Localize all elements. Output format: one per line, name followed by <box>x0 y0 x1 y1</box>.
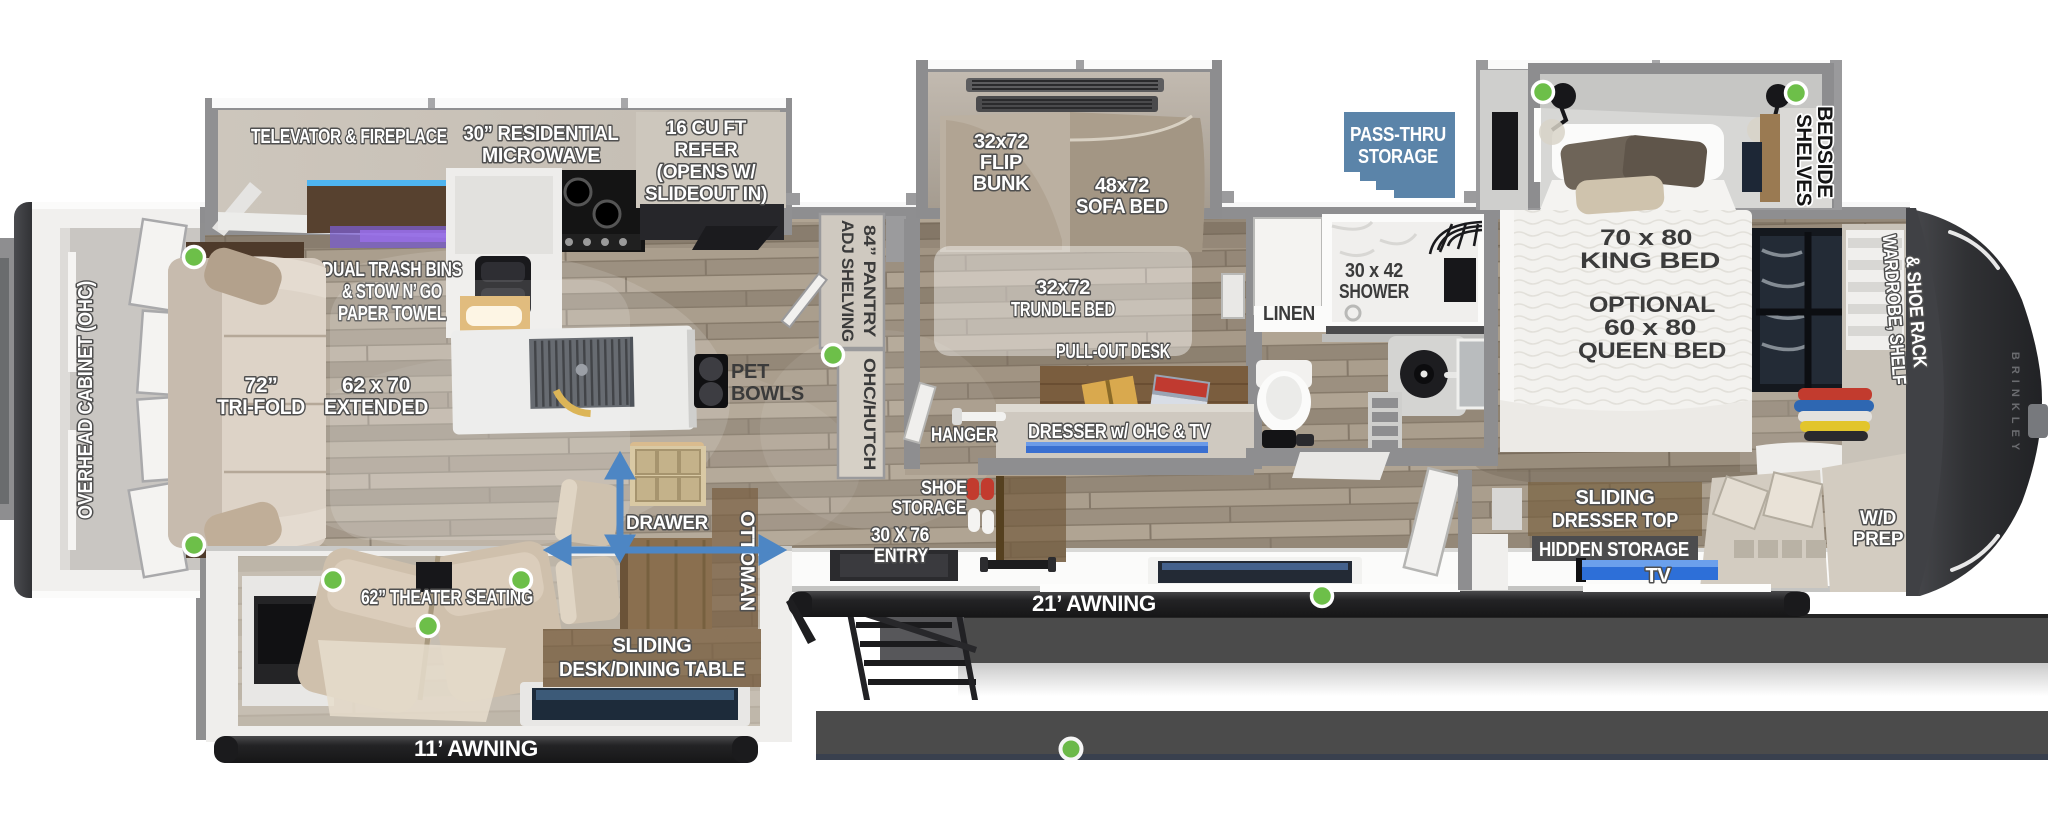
svg-text:SOFA BED: SOFA BED <box>1076 196 1168 218</box>
svg-text:60 x 80: 60 x 80 <box>1604 315 1696 340</box>
svg-text:BUNK: BUNK <box>973 173 1030 195</box>
svg-text:11’ AWNING: 11’ AWNING <box>414 736 538 761</box>
svg-text:BRINKLEY: BRINKLEY <box>2009 352 2021 456</box>
svg-text:32x72: 32x72 <box>974 131 1028 153</box>
svg-text:TELEVATOR & FIREPLACE: TELEVATOR & FIREPLACE <box>251 126 447 148</box>
svg-text:62” THEATER SEATING: 62” THEATER SEATING <box>361 587 533 609</box>
svg-text:OTTOMAN: OTTOMAN <box>736 511 757 611</box>
svg-text:30” RESIDENTIAL: 30” RESIDENTIAL <box>464 123 619 145</box>
svg-text:REFER: REFER <box>675 140 738 161</box>
svg-text:ENTRY: ENTRY <box>874 546 929 567</box>
svg-text:DRESSER TOP: DRESSER TOP <box>1552 510 1678 532</box>
svg-text:TV: TV <box>1646 565 1672 587</box>
svg-text:TRUNDLE BED: TRUNDLE BED <box>1011 299 1115 321</box>
svg-text:(OPENS W/: (OPENS W/ <box>657 162 757 183</box>
svg-text:32x72: 32x72 <box>1036 277 1090 299</box>
svg-text:30 X 76: 30 X 76 <box>871 525 929 546</box>
svg-text:62 x 70: 62 x 70 <box>342 374 410 397</box>
svg-text:SLIDING: SLIDING <box>612 635 691 657</box>
svg-text:HANGER: HANGER <box>931 425 997 446</box>
svg-text:DESK/DINING TABLE: DESK/DINING TABLE <box>559 659 745 681</box>
svg-text:48x72: 48x72 <box>1095 175 1149 197</box>
svg-text:30 x 42: 30 x 42 <box>1345 260 1403 282</box>
svg-text:SHELVES: SHELVES <box>1792 114 1815 206</box>
svg-text:FLIP: FLIP <box>980 152 1022 174</box>
svg-text:21’ AWNING: 21’ AWNING <box>1032 591 1156 616</box>
svg-text:SLIDING: SLIDING <box>1575 487 1654 509</box>
svg-text:ADJ SHELVING: ADJ SHELVING <box>838 220 857 342</box>
svg-text:DUAL TRASH BINS: DUAL TRASH BINS <box>322 259 462 281</box>
svg-text:OPTIONAL: OPTIONAL <box>1589 292 1715 317</box>
svg-text:70 x 80: 70 x 80 <box>1600 225 1692 250</box>
svg-text:BEDSIDE: BEDSIDE <box>1813 106 1836 198</box>
svg-text:SLIDEOUT IN): SLIDEOUT IN) <box>645 184 767 205</box>
svg-text:BOWLS: BOWLS <box>731 383 804 405</box>
svg-text:PASS-THRU: PASS-THRU <box>1350 124 1446 146</box>
svg-text:LINEN: LINEN <box>1263 303 1315 325</box>
svg-text:HIDDEN STORAGE: HIDDEN STORAGE <box>1539 539 1689 561</box>
svg-text:TRI-FOLD: TRI-FOLD <box>217 396 305 419</box>
svg-text:PREP: PREP <box>1853 529 1904 550</box>
svg-text:MICROWAVE: MICROWAVE <box>482 145 600 167</box>
svg-text:DRESSER w/ OHC & TV: DRESSER w/ OHC & TV <box>1028 421 1211 443</box>
svg-text:DRAWER: DRAWER <box>626 513 709 534</box>
svg-text:16 CU FT: 16 CU FT <box>666 118 747 139</box>
svg-text:84” PANTRY: 84” PANTRY <box>860 225 879 338</box>
svg-text:OVERHEAD CABINET (OHC): OVERHEAD CABINET (OHC) <box>75 281 97 519</box>
svg-text:KING BED: KING BED <box>1580 248 1720 273</box>
svg-text:EXTENDED: EXTENDED <box>324 396 428 419</box>
svg-text:QUEEN BED: QUEEN BED <box>1578 338 1726 363</box>
svg-text:PET: PET <box>731 361 769 383</box>
svg-text:72”: 72” <box>245 374 278 397</box>
svg-text:STORAGE: STORAGE <box>892 498 966 519</box>
svg-text:SHOWER: SHOWER <box>1339 281 1410 303</box>
svg-text:STORAGE: STORAGE <box>1358 146 1438 168</box>
svg-text:SHOE: SHOE <box>921 478 967 499</box>
svg-text:W/D: W/D <box>1860 508 1896 529</box>
svg-text:PULL-OUT DESK: PULL-OUT DESK <box>1056 341 1171 363</box>
svg-text:OHC/HUTCH: OHC/HUTCH <box>860 358 879 470</box>
